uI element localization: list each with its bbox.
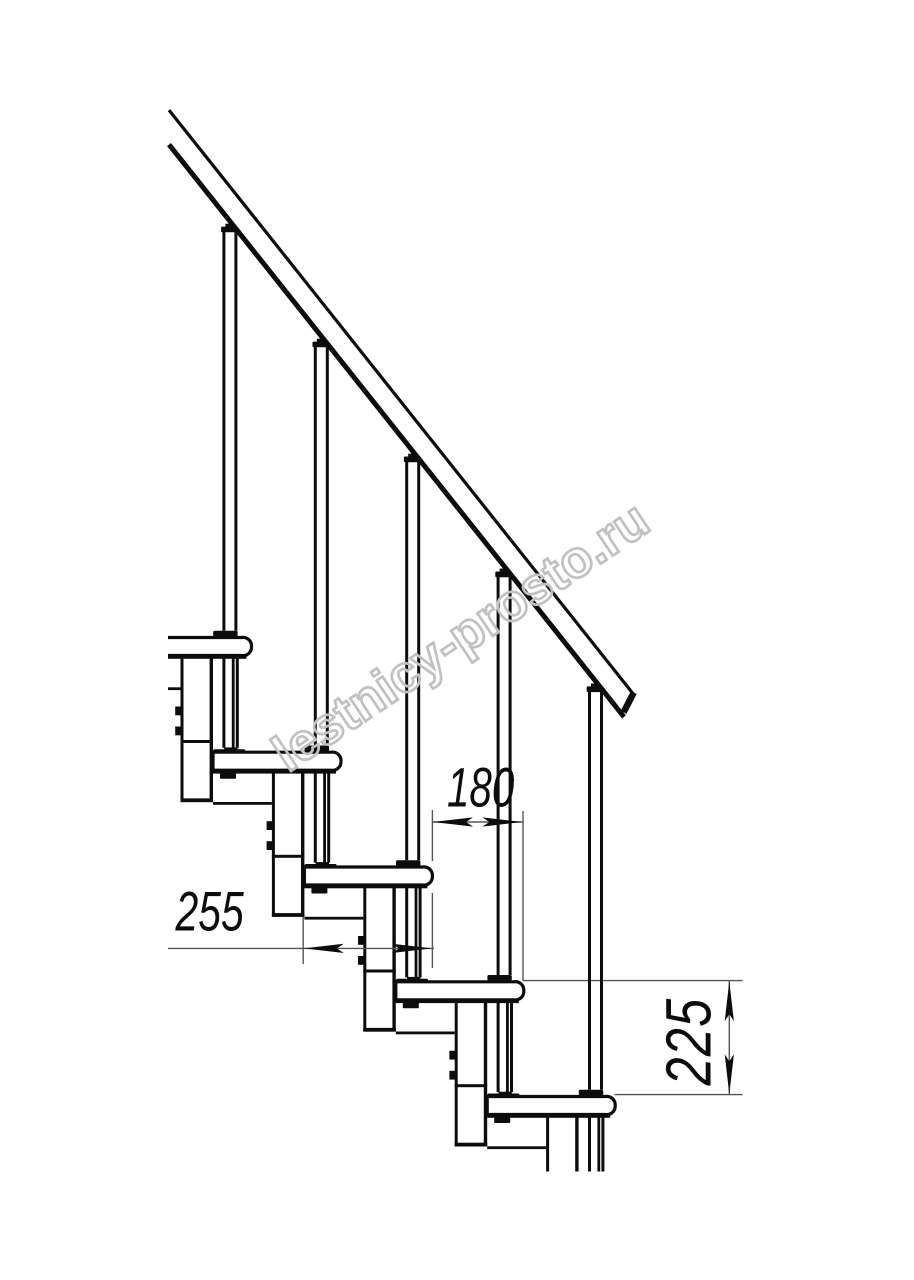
svg-text:255: 255 <box>175 881 245 943</box>
svg-text:180: 180 <box>447 757 514 819</box>
svg-text:225: 225 <box>654 998 725 1087</box>
